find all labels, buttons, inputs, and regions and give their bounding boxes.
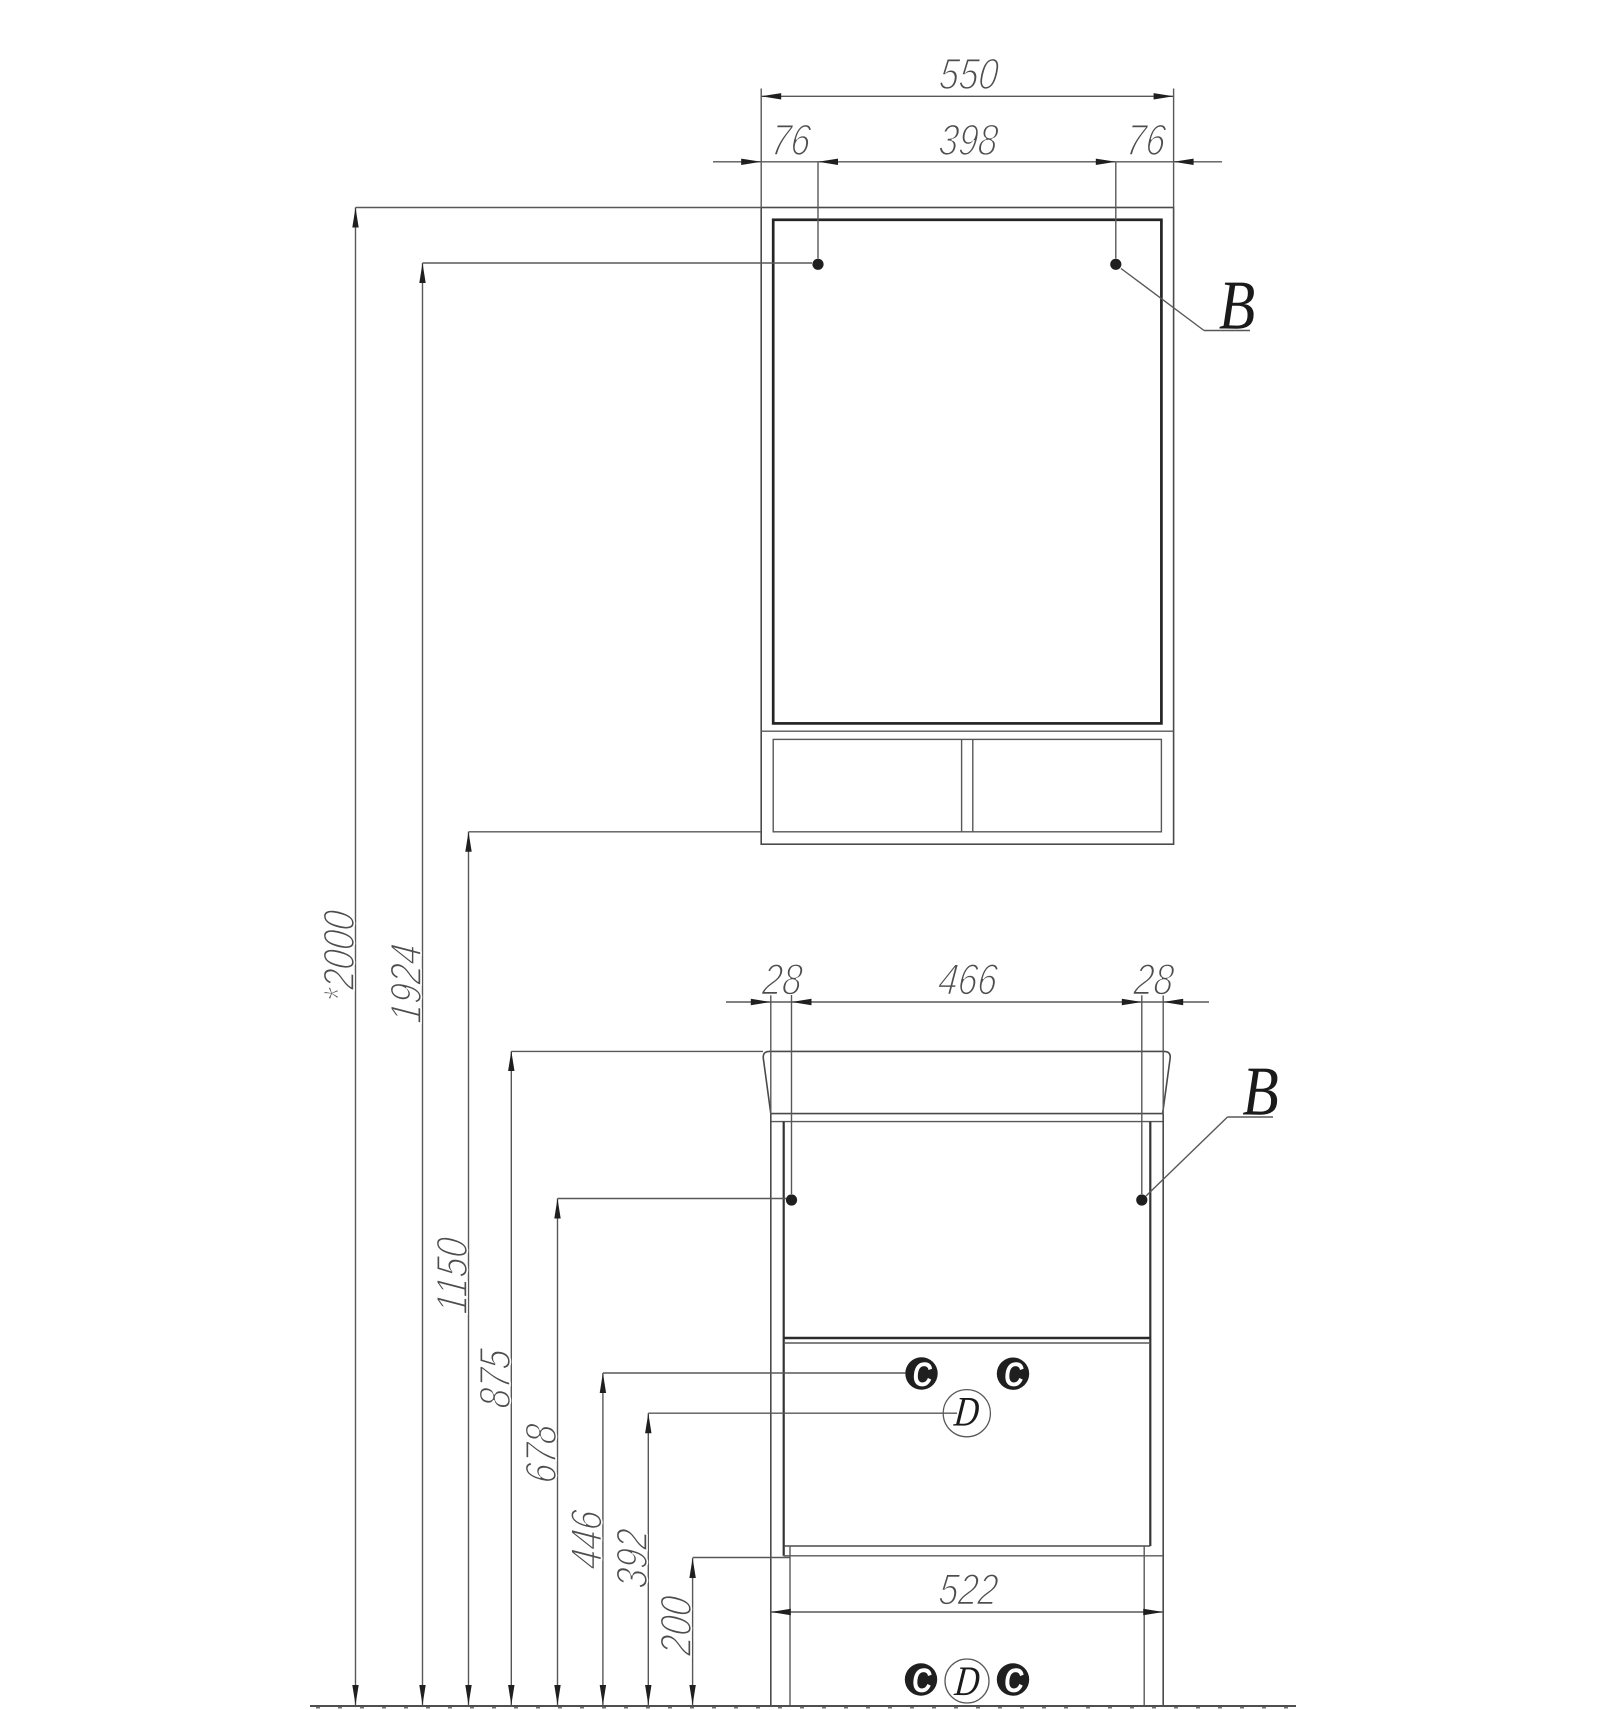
svg-text:398: 398 <box>937 116 1001 165</box>
svg-text:392: 392 <box>608 1527 657 1591</box>
svg-text:C: C <box>911 1356 935 1394</box>
svg-text:1150: 1150 <box>428 1235 477 1316</box>
svg-text:875: 875 <box>471 1346 520 1410</box>
svg-text:446: 446 <box>563 1507 612 1571</box>
svg-text:76: 76 <box>769 116 814 165</box>
svg-text:*2000: *2000 <box>315 907 364 1005</box>
svg-text:C: C <box>1002 1356 1026 1394</box>
svg-text:C: C <box>910 1662 934 1700</box>
svg-text:76: 76 <box>1124 116 1169 165</box>
svg-text:28: 28 <box>1131 956 1177 1005</box>
svg-text:B: B <box>1242 1054 1278 1131</box>
svg-text:C: C <box>1002 1662 1026 1700</box>
svg-text:678: 678 <box>517 1421 566 1485</box>
svg-text:466: 466 <box>936 956 1000 1005</box>
svg-text:550: 550 <box>937 50 1001 99</box>
svg-text:200: 200 <box>652 1593 701 1658</box>
svg-text:522: 522 <box>937 1566 1001 1615</box>
svg-text:B: B <box>1219 268 1255 345</box>
svg-text:28: 28 <box>760 956 806 1005</box>
svg-text:1924: 1924 <box>382 942 431 1025</box>
svg-text:D: D <box>952 1659 982 1705</box>
